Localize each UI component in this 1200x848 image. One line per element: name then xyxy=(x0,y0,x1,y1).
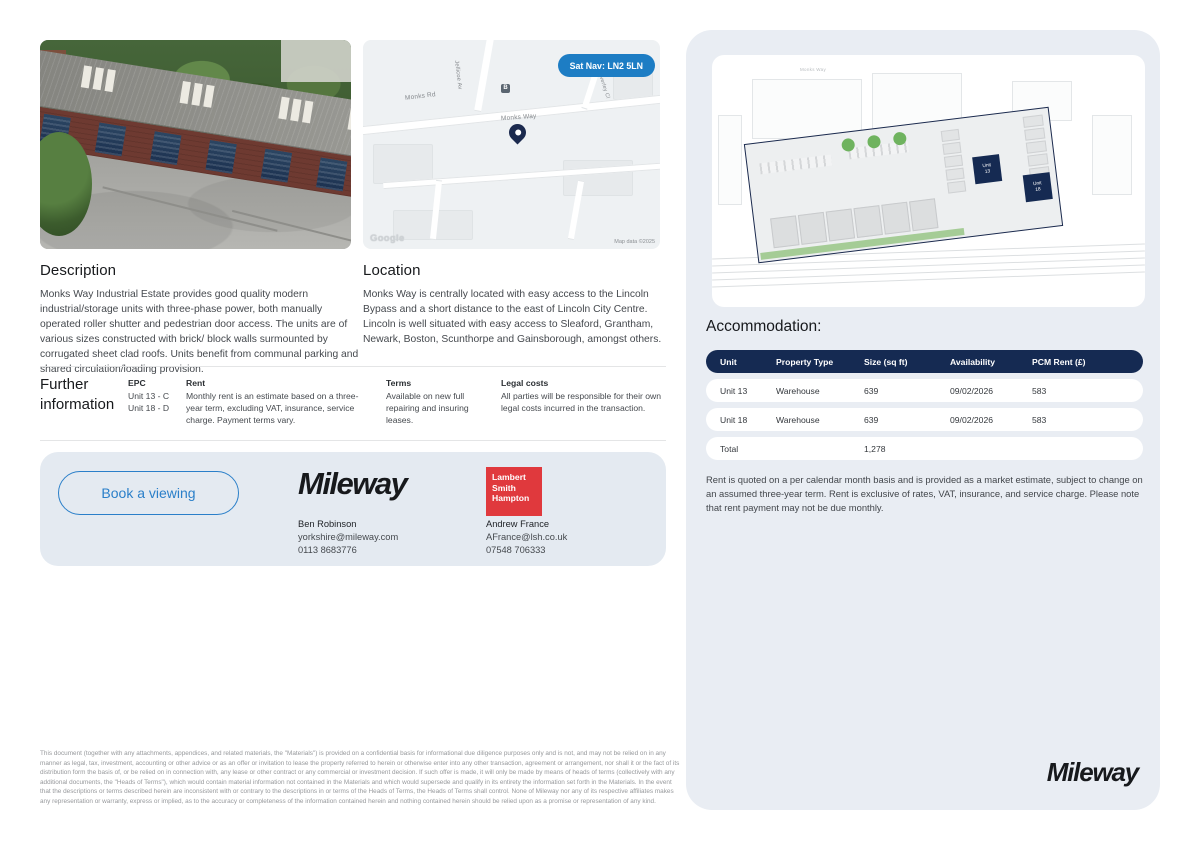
skylight xyxy=(347,108,351,131)
agent-andrew-france: Andrew France AFrance@lsh.co.uk 07548 70… xyxy=(486,518,567,557)
terms-column: Terms Available on new full repairing an… xyxy=(386,377,488,426)
bus-stop-icon: B xyxy=(501,84,510,93)
mileway-logo: Mileway xyxy=(298,466,406,502)
roller-shutter-door xyxy=(95,122,126,156)
legal-disclaimer: This document (together with any attachm… xyxy=(40,749,682,807)
unit-block xyxy=(1026,140,1047,153)
unit-block xyxy=(1027,153,1048,166)
map-attribution: Map data ©2025 xyxy=(614,239,655,245)
roller-shutter-door xyxy=(316,158,347,192)
plan-building-outline xyxy=(752,79,862,139)
unit-number: 13 xyxy=(985,169,991,176)
epc-line: Unit 13 - C xyxy=(128,390,180,402)
rent-body: Monthly rent is an estimate based on a t… xyxy=(186,390,362,426)
divider xyxy=(40,440,666,441)
location-map: Monks Rd Monks Way Jellicoe Av Waverley … xyxy=(363,40,660,249)
road-jellicoe-av xyxy=(474,40,495,112)
agent-phone: 0113 8683776 xyxy=(298,544,398,557)
roller-shutter-door xyxy=(150,131,181,165)
skylight xyxy=(81,65,92,88)
unit-block xyxy=(853,205,882,238)
legal-costs-body: All parties will be responsible for thei… xyxy=(501,390,669,414)
agent-email[interactable]: yorkshire@mileway.com xyxy=(298,531,398,544)
sat-nav-badge: Sat Nav: LN2 5LN xyxy=(558,54,655,77)
unit-block xyxy=(798,212,827,245)
background-building xyxy=(281,40,351,82)
brochure-page: Monks Rd Monks Way Jellicoe Av Waverley … xyxy=(0,0,1200,848)
agent-phone: 07548 706333 xyxy=(486,544,567,557)
header-property-type: Property Type xyxy=(762,357,850,367)
cell-unit: Total xyxy=(706,444,762,454)
rent-note: Rent is quoted on a per calendar month b… xyxy=(706,473,1144,515)
epc-line: Unit 18 - D xyxy=(128,402,180,414)
unit-block xyxy=(1024,127,1045,140)
unit-block xyxy=(942,142,961,155)
railway-line xyxy=(712,271,1145,287)
skylight xyxy=(180,81,191,104)
unit-block xyxy=(826,209,855,242)
road-label-monks-rd: Monks Rd xyxy=(405,91,436,102)
rent-column: Rent Monthly rent is an estimate based o… xyxy=(186,377,362,426)
plan-building-outline xyxy=(718,115,742,205)
cell-unit: Unit 13 xyxy=(706,386,762,396)
map-pin-icon xyxy=(505,120,529,144)
unit-block xyxy=(947,180,966,193)
description-body: Monks Way Industrial Estate provides goo… xyxy=(40,287,364,377)
cell-size: 1,278 xyxy=(850,444,936,454)
book-a-viewing-button[interactable]: Book a viewing xyxy=(58,471,239,515)
road-label-jellicoe: Jellicoe Av xyxy=(453,60,463,90)
epc-column: EPC Unit 13 - C Unit 18 - D xyxy=(128,377,180,414)
google-logo: Google xyxy=(370,233,405,244)
epc-heading: EPC xyxy=(128,377,180,389)
road-label-monks-way: Monks Way xyxy=(501,113,537,122)
cell-property-type: Warehouse xyxy=(762,386,850,396)
cell-size: 639 xyxy=(850,415,936,425)
cell-pcm-rent: 583 xyxy=(1018,386,1143,396)
unit-block xyxy=(945,168,964,181)
site-plan: Monks Way xyxy=(712,55,1145,307)
unit-13-marker: Unit 13 xyxy=(972,154,1002,184)
roller-shutter-door xyxy=(261,149,292,183)
rent-heading: Rent xyxy=(186,377,362,389)
lsh-logo-line: Lambert xyxy=(492,472,542,483)
roller-shutter-door xyxy=(205,140,236,174)
location-body: Monks Way is centrally located with easy… xyxy=(363,287,665,347)
lambert-smith-hampton-logo: Lambert Smith Hampton xyxy=(486,467,542,516)
agent-name: Ben Robinson xyxy=(298,518,398,531)
cell-property-type: Warehouse xyxy=(762,415,850,425)
further-information-title-line1: Further xyxy=(40,375,114,395)
plan-building-outline xyxy=(1092,115,1132,195)
cell-availability: 09/02/2026 xyxy=(936,386,1018,396)
unit-block xyxy=(941,129,960,142)
table-header-row: Unit Property Type Size (sq ft) Availabi… xyxy=(706,350,1143,373)
table-row: Unit 18 Warehouse 639 09/02/2026 583 xyxy=(706,408,1143,431)
lsh-logo-line: Hampton xyxy=(492,493,542,504)
unit-block xyxy=(881,202,910,235)
further-information-title-line2: information xyxy=(40,395,114,415)
cell-unit: Unit 18 xyxy=(706,415,762,425)
lsh-logo-line: Smith xyxy=(492,483,542,494)
table-row: Unit 13 Warehouse 639 09/02/2026 583 xyxy=(706,379,1143,402)
header-unit: Unit xyxy=(706,357,762,367)
further-information-title: Further information xyxy=(40,375,114,415)
legal-costs-heading: Legal costs xyxy=(501,377,669,389)
contact-panel: Book a viewing Mileway Ben Robinson york… xyxy=(40,452,666,566)
unit-column xyxy=(1023,115,1051,180)
cell-availability: 09/02/2026 xyxy=(936,415,1018,425)
accommodation-table: Unit Property Type Size (sq ft) Availabi… xyxy=(706,350,1143,460)
cell-pcm-rent: 583 xyxy=(1018,415,1143,425)
divider xyxy=(40,366,666,367)
parking-bays xyxy=(759,155,832,175)
table-total-row: Total 1,278 xyxy=(706,437,1143,460)
unit-block xyxy=(944,155,963,168)
aerial-photo xyxy=(40,40,351,249)
legal-costs-column: Legal costs All parties will be responsi… xyxy=(501,377,669,414)
agent-name: Andrew France xyxy=(486,518,567,531)
header-size: Size (sq ft) xyxy=(850,357,936,367)
unit-block xyxy=(1023,115,1044,128)
mileway-logo: Mileway xyxy=(1047,757,1138,788)
plan-road-label: Monks Way xyxy=(800,67,826,72)
cell-size: 639 xyxy=(850,386,936,396)
accommodation-title: Accommodation: xyxy=(706,318,821,336)
unit-18-marker: Unit 18 xyxy=(1023,172,1053,202)
agent-ben-robinson: Ben Robinson yorkshire@mileway.com 0113 … xyxy=(298,518,398,557)
accommodation-panel: Monks Way xyxy=(686,30,1160,810)
agent-email[interactable]: AFrance@lsh.co.uk xyxy=(486,531,567,544)
location-title: Location xyxy=(363,262,421,279)
unit-block xyxy=(770,215,799,248)
description-title: Description xyxy=(40,262,116,279)
header-pcm-rent: PCM Rent (£) xyxy=(1018,357,1143,367)
unit-column xyxy=(941,129,967,194)
terms-body: Available on new full repairing and insu… xyxy=(386,390,488,426)
header-availability: Availability xyxy=(936,357,1018,367)
terms-heading: Terms xyxy=(386,377,488,389)
skylight xyxy=(278,97,289,120)
unit-number: 18 xyxy=(1035,187,1041,194)
unit-block xyxy=(909,198,938,231)
map-block xyxy=(373,144,433,184)
